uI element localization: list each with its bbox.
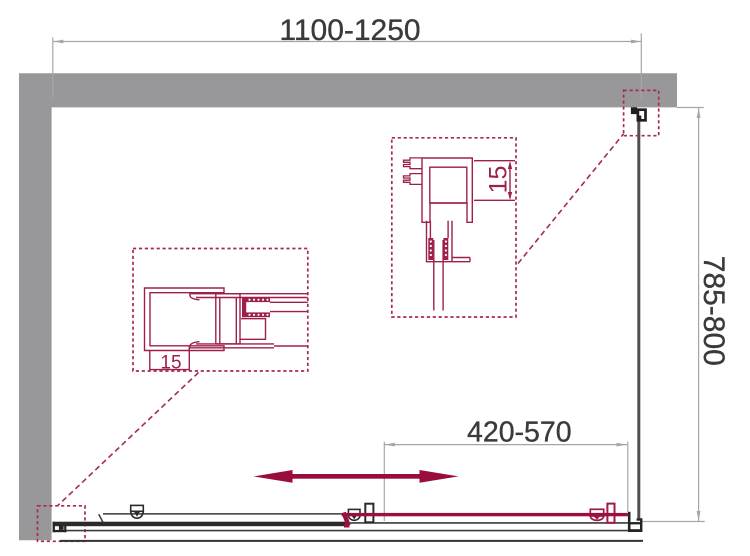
svg-text:1100-1250: 1100-1250: [279, 14, 420, 47]
svg-text:785-800: 785-800: [697, 256, 730, 366]
svg-text:15: 15: [485, 166, 513, 194]
svg-text:15: 15: [160, 352, 181, 373]
svg-text:420-570: 420-570: [467, 417, 572, 449]
